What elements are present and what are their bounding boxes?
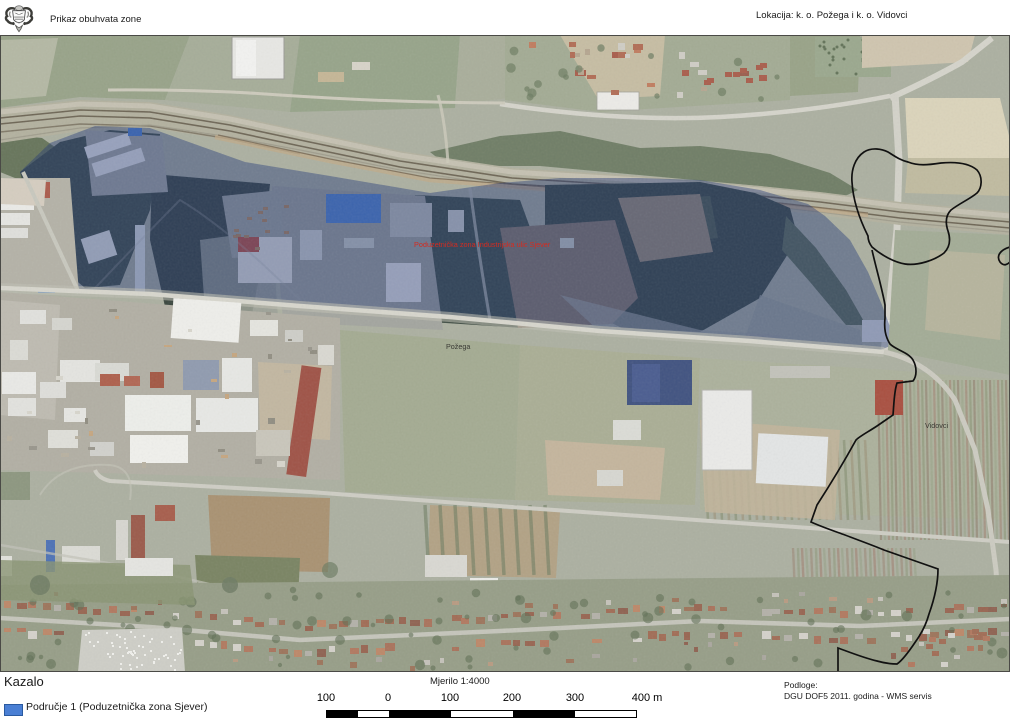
svg-text:Požega: Požega bbox=[446, 342, 470, 351]
svg-text:Vidovci: Vidovci bbox=[925, 421, 948, 430]
svg-text:Poduzetnička zona Industrijska: Poduzetnička zona Industrijska ulic Sjev… bbox=[414, 240, 551, 249]
